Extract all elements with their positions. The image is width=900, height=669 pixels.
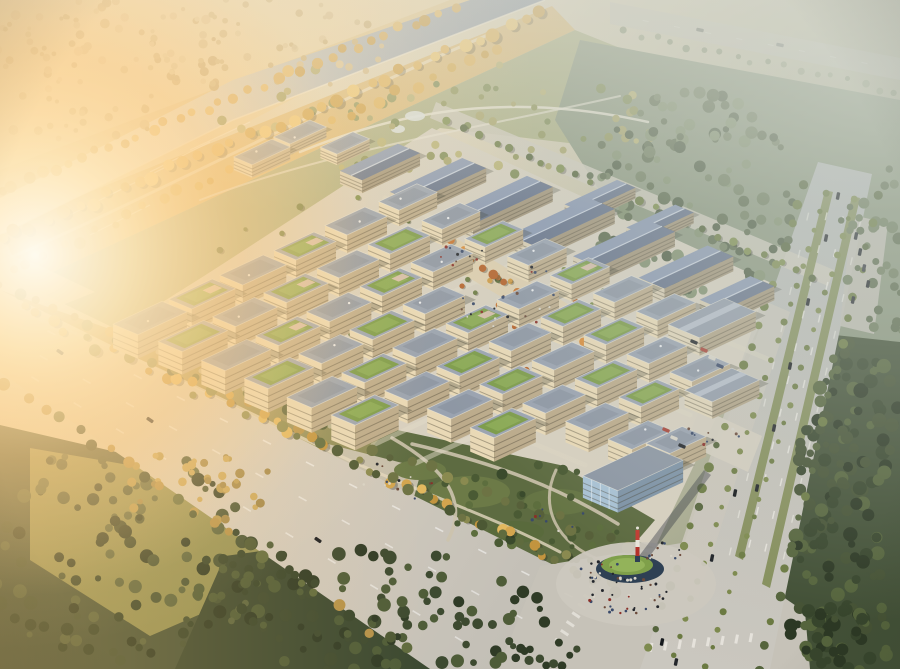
tree	[776, 439, 781, 444]
tree	[140, 638, 147, 645]
tree	[840, 349, 850, 359]
tree	[178, 478, 187, 487]
tree	[225, 139, 233, 147]
tree	[458, 514, 466, 522]
tree	[413, 61, 422, 70]
tree	[496, 61, 503, 68]
person	[608, 611, 611, 614]
person	[386, 481, 388, 483]
tree	[86, 439, 97, 450]
person	[590, 562, 592, 564]
tree	[242, 589, 248, 595]
tree	[537, 160, 543, 166]
person	[466, 316, 468, 318]
tree	[747, 112, 758, 123]
tree	[450, 86, 458, 94]
tree	[885, 445, 895, 455]
tree	[120, 182, 129, 191]
tree	[598, 141, 606, 149]
tree	[600, 173, 607, 180]
tree	[614, 529, 619, 534]
tree	[802, 645, 811, 654]
tree	[71, 575, 82, 586]
tree	[109, 648, 118, 657]
tree	[74, 504, 81, 511]
tree	[298, 580, 305, 587]
tree	[149, 125, 160, 136]
tree	[481, 51, 489, 59]
tree	[336, 60, 344, 68]
tree	[792, 384, 798, 390]
tree	[104, 113, 112, 121]
person	[642, 578, 645, 581]
tree	[139, 471, 150, 482]
tree	[580, 136, 586, 142]
tree	[844, 314, 852, 322]
tree	[76, 425, 85, 434]
tree	[145, 127, 150, 132]
tree	[511, 654, 520, 663]
tree	[822, 561, 834, 573]
tree	[735, 247, 743, 255]
tree	[729, 237, 737, 245]
tree	[811, 327, 816, 332]
tree	[842, 372, 851, 381]
tree	[494, 538, 503, 547]
tree	[829, 271, 835, 277]
tree	[261, 84, 269, 92]
tree	[188, 377, 198, 387]
tree	[137, 499, 143, 505]
tree	[188, 108, 196, 116]
tree	[120, 66, 128, 74]
tree	[756, 215, 766, 225]
tree	[31, 308, 40, 317]
tree	[64, 124, 68, 128]
tree	[533, 5, 545, 17]
tree	[874, 191, 883, 200]
tree	[149, 41, 154, 46]
rooftop-unit	[532, 250, 534, 252]
tree	[71, 313, 79, 321]
tree	[430, 614, 438, 622]
tree	[57, 77, 62, 82]
tree	[465, 277, 470, 282]
tree	[872, 400, 883, 411]
tree	[495, 141, 501, 147]
tree	[39, 621, 50, 632]
tree	[54, 411, 65, 422]
tree	[34, 126, 43, 135]
tree	[93, 8, 99, 14]
tree	[225, 528, 233, 536]
monument-tower-tip	[636, 527, 639, 530]
tree	[742, 159, 751, 168]
tree	[217, 116, 227, 126]
tree	[179, 586, 186, 593]
tree	[658, 102, 668, 112]
tree	[112, 131, 121, 140]
tree	[264, 468, 270, 474]
tree	[279, 609, 292, 622]
tree	[94, 483, 102, 491]
tree	[430, 586, 442, 598]
tree	[344, 630, 352, 638]
person	[501, 296, 504, 299]
tree	[658, 192, 671, 205]
person	[593, 576, 596, 579]
tree	[744, 268, 752, 276]
tree	[386, 454, 393, 461]
tree	[840, 233, 847, 240]
tree	[614, 126, 620, 132]
tree	[460, 39, 473, 52]
tree	[216, 40, 221, 45]
person	[648, 554, 651, 557]
person	[398, 479, 401, 482]
tree	[243, 85, 252, 94]
tree	[332, 547, 346, 561]
tree	[207, 178, 214, 185]
person	[735, 432, 738, 435]
tree	[295, 9, 303, 17]
tree	[493, 86, 499, 92]
tree	[429, 73, 437, 81]
tree	[365, 629, 374, 638]
tree	[171, 63, 178, 70]
tree	[164, 57, 170, 63]
tree	[468, 490, 478, 500]
person	[571, 526, 573, 528]
rooftop-unit	[255, 150, 257, 152]
tree	[328, 116, 336, 124]
tree	[242, 411, 250, 419]
tree	[218, 472, 226, 480]
tree	[834, 252, 841, 259]
tree	[453, 596, 464, 607]
tree	[69, 603, 79, 613]
tree	[537, 547, 545, 555]
tree	[231, 570, 239, 578]
tree	[886, 221, 898, 233]
tree	[10, 265, 18, 273]
rooftop-unit	[348, 302, 350, 304]
tree	[852, 575, 861, 584]
tree	[332, 445, 343, 456]
tree	[802, 570, 811, 579]
tree	[59, 572, 66, 579]
tree	[56, 459, 67, 470]
tree	[334, 615, 344, 625]
rooftop-unit	[333, 344, 335, 346]
tree	[536, 655, 544, 663]
tree	[516, 538, 524, 546]
tree	[455, 151, 462, 158]
person	[461, 308, 463, 310]
tree	[148, 65, 153, 70]
tree	[708, 542, 713, 547]
person	[539, 515, 541, 517]
tree	[712, 223, 720, 231]
tree	[794, 283, 800, 289]
tree	[253, 580, 260, 587]
tree	[323, 39, 328, 44]
rooftop-unit	[447, 217, 449, 219]
tree	[566, 652, 573, 659]
tree	[846, 216, 851, 221]
tree	[112, 222, 119, 229]
tree	[787, 402, 793, 408]
tree	[715, 627, 721, 633]
tree	[654, 94, 661, 101]
person	[548, 306, 550, 308]
tree	[639, 35, 645, 41]
tree	[210, 518, 220, 528]
tree	[791, 532, 801, 542]
tree	[740, 211, 749, 220]
tree	[488, 270, 498, 280]
tree	[389, 578, 397, 586]
tree	[5, 181, 17, 193]
tree	[802, 604, 815, 617]
tree	[397, 596, 408, 607]
person	[493, 308, 495, 310]
tree	[77, 202, 86, 211]
tree	[393, 64, 404, 75]
tree	[799, 180, 808, 189]
tree	[88, 624, 99, 635]
tree	[479, 94, 485, 100]
tree	[73, 128, 78, 133]
tree	[131, 600, 142, 611]
tree	[13, 526, 26, 539]
tree	[572, 171, 579, 178]
tree	[194, 16, 199, 21]
tree	[339, 164, 345, 170]
tree	[310, 579, 319, 588]
tree	[714, 234, 721, 241]
tree	[158, 117, 167, 126]
tree	[104, 143, 112, 151]
tree	[393, 21, 403, 31]
person	[534, 271, 537, 274]
tree	[587, 172, 594, 179]
tree	[3, 63, 9, 69]
tree	[517, 586, 530, 599]
tree	[555, 639, 563, 647]
tree	[473, 290, 478, 295]
tree	[57, 205, 70, 218]
person	[381, 465, 383, 467]
person	[452, 264, 455, 267]
tree	[459, 283, 464, 288]
tree	[731, 468, 737, 474]
tree	[744, 229, 750, 235]
tree	[860, 457, 871, 468]
tree	[197, 497, 202, 502]
tree	[235, 469, 244, 478]
tree	[483, 84, 491, 92]
tree	[612, 150, 622, 160]
person	[481, 250, 483, 252]
tree	[388, 472, 399, 483]
tree	[181, 538, 190, 547]
tree	[654, 156, 661, 163]
tree	[492, 45, 502, 55]
rooftop-unit	[697, 369, 699, 371]
tree	[297, 588, 304, 595]
tree	[876, 88, 883, 95]
tree	[778, 144, 784, 150]
tree	[220, 482, 227, 489]
tree	[27, 26, 31, 30]
tree	[423, 598, 431, 606]
tree	[352, 39, 358, 45]
tree	[877, 613, 886, 622]
tree	[461, 617, 470, 626]
person	[516, 292, 519, 295]
tree	[192, 589, 203, 600]
person	[706, 441, 708, 443]
tree	[829, 487, 841, 499]
tree	[368, 78, 377, 87]
person	[601, 563, 603, 565]
tree	[30, 47, 38, 55]
tree	[848, 220, 857, 229]
tree	[74, 613, 81, 620]
tree	[719, 243, 727, 251]
tree	[223, 456, 230, 463]
tree	[161, 14, 166, 19]
tree	[45, 85, 52, 92]
tree	[680, 542, 688, 550]
tree	[257, 592, 269, 604]
tree	[765, 59, 771, 65]
person	[610, 566, 612, 568]
tree	[244, 538, 257, 551]
rooftop-unit	[358, 220, 360, 222]
tree	[841, 505, 852, 516]
tree	[46, 96, 52, 102]
tree	[714, 522, 719, 527]
tree	[108, 445, 116, 453]
tree	[407, 94, 415, 102]
tree	[707, 89, 720, 102]
tree	[877, 433, 890, 446]
tree	[831, 588, 845, 602]
tree	[228, 617, 235, 624]
tree	[121, 209, 131, 219]
tree	[498, 529, 507, 538]
tree	[756, 497, 761, 502]
tree	[434, 10, 442, 18]
tree	[625, 130, 634, 139]
tree	[667, 39, 673, 45]
tree	[96, 538, 105, 547]
tree	[24, 393, 34, 403]
person	[384, 484, 386, 486]
tree	[710, 131, 720, 141]
tree	[354, 19, 360, 25]
tree	[408, 457, 417, 466]
person	[619, 612, 621, 614]
tree	[367, 115, 373, 121]
tree	[877, 359, 891, 373]
person	[591, 577, 593, 579]
tree	[54, 552, 64, 562]
tree	[451, 654, 464, 667]
tree	[221, 64, 228, 71]
tree	[805, 246, 812, 253]
tree	[695, 503, 703, 511]
tree	[843, 527, 857, 541]
tree	[213, 605, 226, 618]
tree	[687, 202, 693, 208]
tree	[118, 525, 132, 539]
tree	[192, 150, 202, 160]
tree	[6, 56, 14, 64]
person	[611, 594, 613, 596]
tree	[13, 584, 27, 598]
tree	[198, 39, 207, 48]
tree	[817, 209, 822, 214]
tree	[437, 608, 444, 615]
person	[650, 598, 652, 600]
tree	[544, 118, 550, 124]
tree	[219, 565, 228, 574]
tree	[228, 94, 238, 104]
tree	[447, 63, 456, 72]
tree	[721, 423, 729, 431]
tree	[519, 491, 525, 497]
tree	[818, 417, 828, 427]
rooftop-unit	[419, 301, 421, 303]
tree	[880, 648, 893, 661]
tree	[105, 549, 114, 558]
tree	[24, 596, 38, 610]
tree	[243, 227, 247, 231]
tree	[838, 217, 845, 224]
tree	[15, 288, 27, 300]
tree	[337, 572, 350, 585]
person	[619, 576, 622, 579]
tree	[293, 433, 300, 440]
person	[531, 271, 533, 273]
person	[534, 515, 537, 518]
tree	[150, 29, 154, 33]
rooftop-unit	[248, 274, 250, 276]
tree	[620, 26, 627, 33]
tree	[755, 322, 763, 330]
tree	[801, 425, 811, 435]
tree	[442, 117, 450, 125]
tree	[800, 621, 809, 630]
tree	[505, 144, 513, 152]
person	[674, 557, 676, 559]
tree	[850, 498, 862, 510]
tree	[136, 514, 143, 521]
tree	[364, 20, 372, 28]
tree	[872, 532, 882, 542]
tree	[338, 44, 347, 53]
tree	[418, 621, 428, 631]
tree	[339, 585, 346, 592]
tree	[174, 75, 180, 81]
tree	[298, 623, 305, 630]
tree	[801, 492, 810, 501]
tree	[501, 497, 510, 506]
tree	[276, 122, 287, 133]
